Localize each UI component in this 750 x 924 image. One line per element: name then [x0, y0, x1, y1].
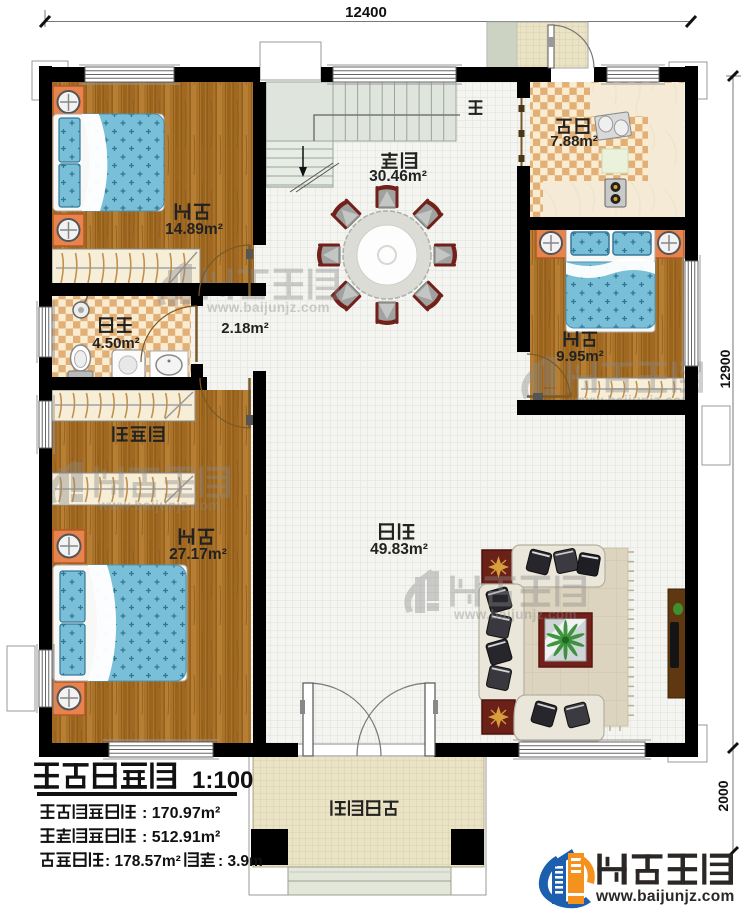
svg-text:1:100: 1:100 — [192, 767, 253, 794]
svg-text:30.46m²: 30.46m² — [369, 168, 427, 185]
svg-text:14.89m²: 14.89m² — [165, 221, 223, 238]
svg-text:www.baijunjz.com: www.baijunjz.com — [97, 498, 221, 513]
svg-text:4.50m²: 4.50m² — [92, 335, 140, 352]
svg-text:: 178.57m²: : 178.57m² — [105, 853, 181, 870]
svg-text:www.baijunjz.com: www.baijunjz.com — [595, 888, 735, 905]
svg-text:7.88m²: 7.88m² — [550, 133, 598, 150]
svg-text:2000: 2000 — [715, 780, 731, 811]
svg-text:: 512.91m²: : 512.91m² — [142, 829, 220, 846]
svg-text:: 3.9m: : 3.9m — [218, 853, 263, 870]
svg-text:27.17m²: 27.17m² — [169, 546, 227, 563]
svg-text:9.95m²: 9.95m² — [556, 348, 604, 365]
svg-text:www.baijunjz.com: www.baijunjz.com — [206, 300, 330, 315]
svg-text:2.18m²: 2.18m² — [221, 320, 269, 337]
svg-text:12900: 12900 — [717, 349, 733, 388]
svg-text:49.83m²: 49.83m² — [370, 541, 428, 558]
svg-text:www.baijunjz.com: www.baijunjz.com — [453, 607, 577, 622]
svg-text:12400: 12400 — [345, 4, 387, 21]
svg-text:: 170.97m²: : 170.97m² — [142, 805, 220, 822]
